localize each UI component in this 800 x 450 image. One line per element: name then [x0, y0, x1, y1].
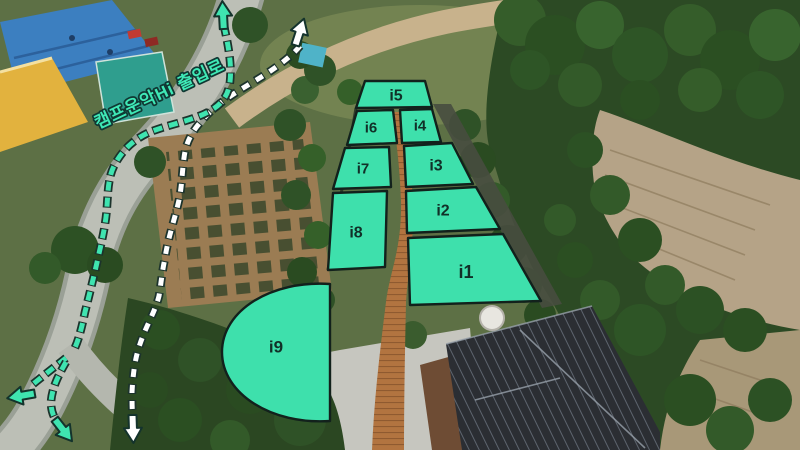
- zone-label-i3: i3: [429, 158, 442, 175]
- zone-label-i6: i6: [365, 120, 378, 137]
- zone-label-i8: i8: [349, 225, 362, 242]
- zone-label-i9: i9: [269, 338, 283, 357]
- zone-label-i4: i4: [414, 118, 427, 135]
- zone-label-i1: i1: [458, 262, 473, 282]
- dome-tent: [480, 306, 504, 330]
- zone-label-i7: i7: [357, 161, 370, 178]
- zone-label-i5: i5: [389, 88, 402, 105]
- aerial-photo: i5 i6 i4 i7 i3 i8 i2 i1 i9 캠프운악Hi 출입로: [0, 0, 800, 450]
- campground-aerial-map: i5 i6 i4 i7 i3 i8 i2 i1 i9 캠프운악Hi 출입로: [0, 0, 800, 450]
- zone-label-i2: i2: [436, 203, 449, 220]
